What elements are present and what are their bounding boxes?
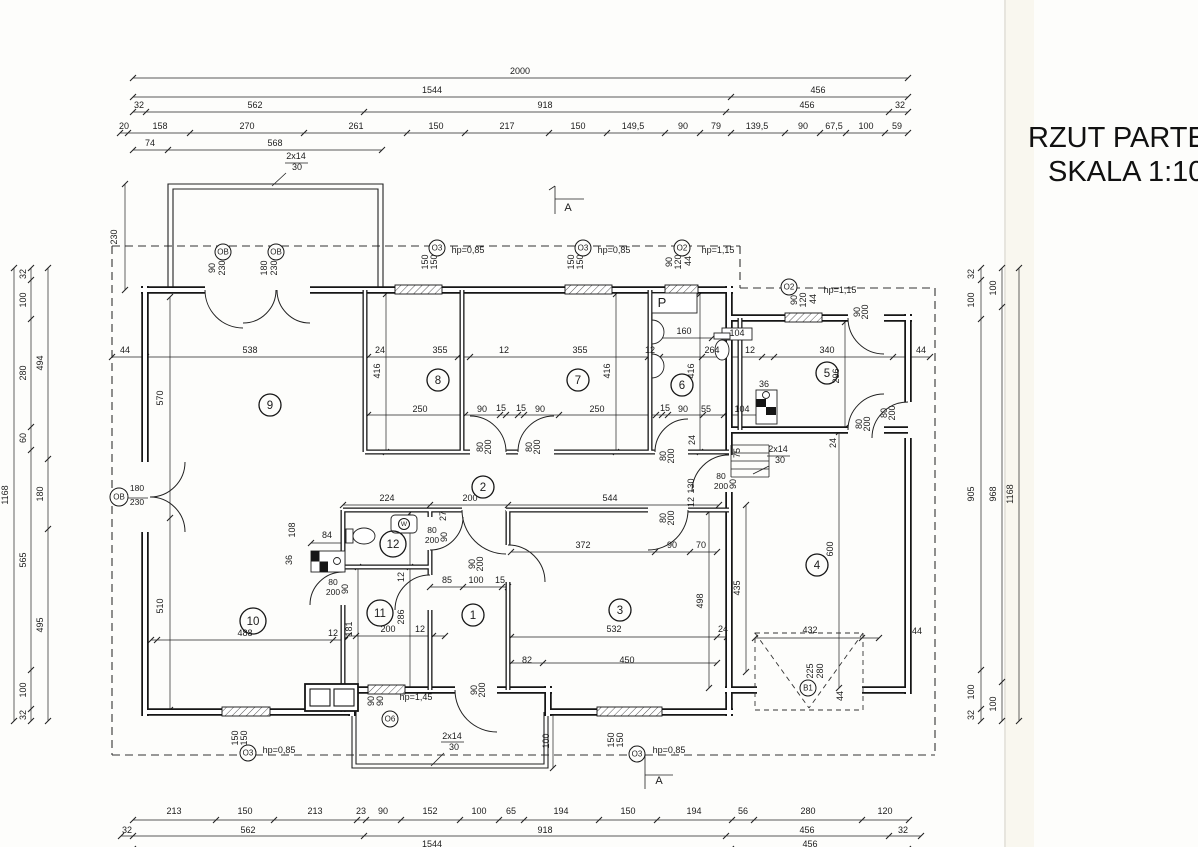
dim-label: 456: [799, 825, 814, 835]
dim-label: 250: [412, 404, 427, 414]
dim-label: 12: [415, 624, 425, 634]
dim-label: 70: [696, 540, 706, 550]
dim-label: 32: [122, 825, 132, 835]
dim-label: 150: [237, 806, 252, 816]
dim-label: 230: [130, 497, 144, 507]
dim-label: A: [564, 202, 572, 214]
dim-label: 200: [860, 304, 870, 319]
dim-label: 120: [877, 806, 892, 816]
dim-label: hp=0,85: [263, 745, 296, 755]
dim-label: 120: [673, 254, 683, 269]
window-icon: [395, 285, 442, 294]
dim-label: 36: [284, 555, 294, 565]
dim-label: 90: [375, 696, 385, 706]
dim-label: 270: [239, 121, 254, 131]
dim-label: 32: [966, 710, 976, 720]
marker-tag: OB: [113, 493, 125, 502]
dim-label: 152: [422, 806, 437, 816]
dim-label: 130: [686, 478, 696, 493]
room-number: 6: [679, 380, 685, 392]
dim-label: 59: [892, 121, 902, 131]
marker-tag: O2: [677, 244, 688, 253]
dim-label: 82: [522, 655, 532, 665]
dim-label: 296: [831, 368, 841, 383]
dim-label: 149,5: [622, 121, 645, 131]
dim-label: 968: [988, 486, 998, 501]
floor-plan-drawing: RZUT PARTER SKALA 1:100: [0, 0, 1198, 847]
window-icon: [597, 707, 662, 716]
dim-label: 100: [988, 280, 998, 295]
dim-label: 213: [166, 806, 181, 816]
fireplace-icon: [334, 689, 354, 706]
dim-label: 2x14: [442, 731, 462, 741]
fireplace-icon: [310, 689, 330, 706]
dim-label: 456: [802, 839, 817, 847]
dim-label: hp=1,15: [824, 285, 857, 295]
dim-label: 416: [686, 363, 696, 378]
marker-tag: OB: [270, 248, 282, 257]
dim-label: 160: [676, 326, 691, 336]
dim-label: 200: [425, 535, 439, 545]
dim-label: 90: [477, 404, 487, 414]
dim-label: 12: [645, 345, 655, 355]
room-number: 4: [814, 560, 821, 572]
dim-label: 918: [537, 100, 552, 110]
dim-label: 27: [438, 511, 448, 521]
dim-label: 108: [287, 522, 297, 537]
dim-label: 44: [808, 294, 818, 304]
dim-label: 180: [130, 483, 144, 493]
dim-label: 12: [745, 345, 755, 355]
room-number: 1: [470, 610, 476, 622]
dim-label: 24: [828, 438, 838, 448]
marker-tag: O3: [432, 244, 443, 253]
dim-label: 562: [240, 825, 255, 835]
dim-label: 20: [119, 121, 129, 131]
dim-label: 15: [496, 403, 506, 413]
dim-label: 44: [835, 691, 845, 701]
dim-label: 372: [575, 540, 590, 550]
room-number: 7: [575, 375, 581, 387]
dim-label: 158: [152, 121, 167, 131]
dim-label: 90: [678, 404, 688, 414]
dim-label: hp=0,85: [653, 745, 686, 755]
room-number: 11: [374, 608, 386, 620]
fixtures: [305, 293, 777, 711]
dim-label: 90: [535, 404, 545, 414]
dim-label: 200: [532, 439, 542, 454]
dim-label: 200: [666, 448, 676, 463]
dim-label: 450: [619, 655, 634, 665]
dim-label: 80: [328, 577, 338, 587]
dim-label: 1544: [422, 85, 442, 95]
dim-label: A: [655, 775, 663, 787]
dim-label: 355: [432, 345, 447, 355]
dim-label: 200: [475, 556, 485, 571]
washbasin-icon: [652, 320, 664, 344]
dim-label: 30: [449, 742, 459, 752]
dim-label: 65: [506, 806, 516, 816]
page-title: RZUT PARTER: [1028, 122, 1198, 154]
dim-label: 565: [18, 552, 28, 567]
room-number: 9: [267, 400, 273, 412]
dim-label: 85: [442, 575, 452, 585]
dim-label: 194: [686, 806, 701, 816]
dim-label: 74: [145, 138, 155, 148]
dim-label: 79: [711, 121, 721, 131]
dim-label: 150: [429, 254, 439, 269]
dim-label: 104: [729, 328, 744, 338]
dim-label: 510: [155, 598, 165, 613]
dim-label: 200: [714, 481, 728, 491]
dim-label: 139,5: [746, 121, 769, 131]
marker-tag: O6: [385, 715, 396, 724]
dim-label: 1168: [0, 485, 10, 504]
dim-label: 30: [775, 455, 785, 465]
dim-label: 90: [207, 263, 217, 273]
dim-label: 194: [553, 806, 568, 816]
dim-label: 36: [759, 379, 769, 389]
dim-label: hp=1,15: [702, 245, 735, 255]
dim-label: hp=1,45: [400, 692, 433, 702]
dim-label: 120: [798, 292, 808, 307]
dim-label: 90: [378, 806, 388, 816]
dim-label: 32: [966, 269, 976, 279]
dim-label: 532: [606, 624, 621, 634]
dim-label: 32: [134, 100, 144, 110]
room-number: 10: [247, 616, 260, 628]
dim-label: 280: [815, 663, 825, 678]
window-icon: [222, 707, 270, 716]
dim-label: 90: [798, 121, 808, 131]
dim-label: 150: [570, 121, 585, 131]
dim-label: 44: [916, 345, 926, 355]
dim-label: 12: [396, 572, 406, 582]
dim-label: 432: [802, 625, 817, 635]
dim-label: 44: [912, 626, 922, 636]
dim-label: 280: [18, 365, 28, 380]
dim-label: 264: [704, 345, 719, 355]
toilet-icon: [353, 528, 375, 544]
dim-label: 150: [620, 806, 635, 816]
dim-label: 56: [738, 806, 748, 816]
dim-label: 100: [966, 292, 976, 307]
floor-plan-page: RZUT PARTER SKALA 1:100: [0, 0, 1198, 847]
dim-label: 100: [471, 806, 486, 816]
dim-label: 495: [35, 617, 45, 632]
dim-label: 498: [695, 593, 705, 608]
dim-label: 286: [396, 609, 406, 624]
dim-label: 340: [819, 345, 834, 355]
dim-label: P: [658, 295, 667, 310]
dim-label: 100: [18, 292, 28, 307]
toilet-tank-icon: [346, 529, 353, 543]
dim-label: 600: [825, 541, 835, 556]
dim-label: 15: [495, 575, 505, 585]
dim-label: 32: [18, 710, 28, 720]
dim-label: 75: [732, 448, 742, 458]
room-number: 8: [435, 375, 441, 387]
dim-label: 213: [307, 806, 322, 816]
dim-label: 100: [966, 684, 976, 699]
dim-label: 100: [18, 682, 28, 697]
dim-label: 200: [477, 682, 487, 697]
dim-label: 30: [292, 162, 302, 172]
dim-label: 200: [862, 416, 872, 431]
dim-label: 100: [541, 733, 551, 748]
dim-label: 416: [372, 363, 382, 378]
chimney-icon: [756, 390, 777, 424]
dim-label: 24: [718, 624, 728, 634]
dim-label: 544: [602, 493, 617, 503]
room-number: 5: [824, 368, 830, 380]
dim-label: hp=0,85: [452, 245, 485, 255]
dim-label: 2x14: [768, 444, 788, 454]
dim-label: 2000: [510, 66, 530, 76]
page-scale: SKALA 1:100: [1048, 156, 1198, 188]
dim-label: 250: [589, 404, 604, 414]
marker-tag: B1: [803, 684, 813, 693]
dim-label: 84: [322, 530, 332, 540]
dim-label: 230: [269, 260, 279, 275]
dim-label: 60: [18, 433, 28, 443]
dim-label: 918: [537, 825, 552, 835]
dim-label: 568: [267, 138, 282, 148]
marker-tag: W: [401, 521, 408, 528]
dim-label: 261: [348, 121, 363, 131]
dim-label: 538: [242, 345, 257, 355]
chimney-icon: [311, 551, 345, 572]
room-number: 12: [387, 539, 400, 551]
dim-label: 280: [800, 806, 815, 816]
dim-label: 180: [35, 486, 45, 501]
dim-label: 15: [660, 403, 670, 413]
dim-label: 488: [237, 628, 252, 638]
dim-label: 200: [887, 405, 897, 420]
dim-label: 217: [499, 121, 514, 131]
dim-label: 90: [667, 540, 677, 550]
dim-label: 200: [666, 510, 676, 525]
room-number: 2: [480, 482, 486, 494]
dim-label: 1168: [1005, 484, 1015, 503]
dim-label: 32: [18, 269, 28, 279]
dim-label: 32: [895, 100, 905, 110]
dim-label: 90: [340, 584, 350, 594]
dim-label: 225: [805, 663, 815, 678]
dim-label: 24: [375, 345, 385, 355]
dim-label: 80: [427, 525, 437, 535]
dim-label: 180: [259, 260, 269, 275]
dim-label: 905: [966, 486, 976, 501]
washbasin-icon: [652, 354, 664, 378]
dim-label: 44: [120, 345, 130, 355]
toilet-tank-icon: [714, 333, 730, 339]
marker-tag: OB: [217, 248, 229, 257]
dim-label: 100: [468, 575, 483, 585]
dim-label: 90: [439, 532, 449, 542]
dim-label: 456: [810, 85, 825, 95]
dim-label: 90: [728, 479, 738, 489]
window-icon: [785, 313, 822, 322]
dim-label: 12: [686, 497, 696, 507]
dim-label: 435: [732, 580, 742, 595]
marker-tag: O3: [243, 749, 254, 758]
partition-walls: [343, 290, 740, 712]
dim-label: 23: [356, 806, 366, 816]
dim-label: 230: [109, 229, 119, 244]
title-block: RZUT PARTER SKALA 1:100: [1028, 122, 1198, 188]
dim-label: 12: [499, 345, 509, 355]
marker-tag: O3: [578, 244, 589, 253]
dim-label: 44: [683, 256, 693, 266]
dim-label: 416: [602, 363, 612, 378]
dimension-labels: 2000154445632562918456322015827026115021…: [0, 66, 1015, 847]
marker-tag: O3: [632, 750, 643, 759]
dim-label: 562: [247, 100, 262, 110]
dim-label: 456: [799, 100, 814, 110]
dim-label: 80: [716, 471, 726, 481]
dim-label: 2x14: [286, 151, 306, 161]
window-icon: [565, 285, 612, 294]
dim-label: hp=0,85: [598, 245, 631, 255]
dim-label: 570: [155, 390, 165, 405]
dim-label: 15: [516, 403, 526, 413]
dim-label: 181: [344, 621, 354, 636]
dimension-chains: [11, 75, 1022, 847]
dim-label: 200: [326, 587, 340, 597]
dim-label: 150: [575, 254, 585, 269]
dim-label: 355: [572, 345, 587, 355]
dim-label: 230: [217, 260, 227, 275]
dim-label: 150: [428, 121, 443, 131]
dim-label: 100: [858, 121, 873, 131]
dim-label: 104: [734, 404, 749, 414]
dim-label: 494: [35, 355, 45, 370]
dim-label: 150: [615, 732, 625, 747]
dim-label: 67,5: [825, 121, 843, 131]
dim-label: 100: [988, 696, 998, 711]
dim-label: 24: [687, 435, 697, 445]
dim-label: 1544: [422, 839, 442, 847]
dim-label: 32: [898, 825, 908, 835]
dim-label: 200: [483, 439, 493, 454]
dim-label: 150: [239, 730, 249, 745]
dim-label: 12: [328, 628, 338, 638]
dim-label: 224: [379, 493, 394, 503]
marker-tag: O2: [784, 283, 795, 292]
dim-label: 90: [678, 121, 688, 131]
room-number: 3: [617, 605, 623, 617]
dim-label: 55: [701, 404, 711, 414]
